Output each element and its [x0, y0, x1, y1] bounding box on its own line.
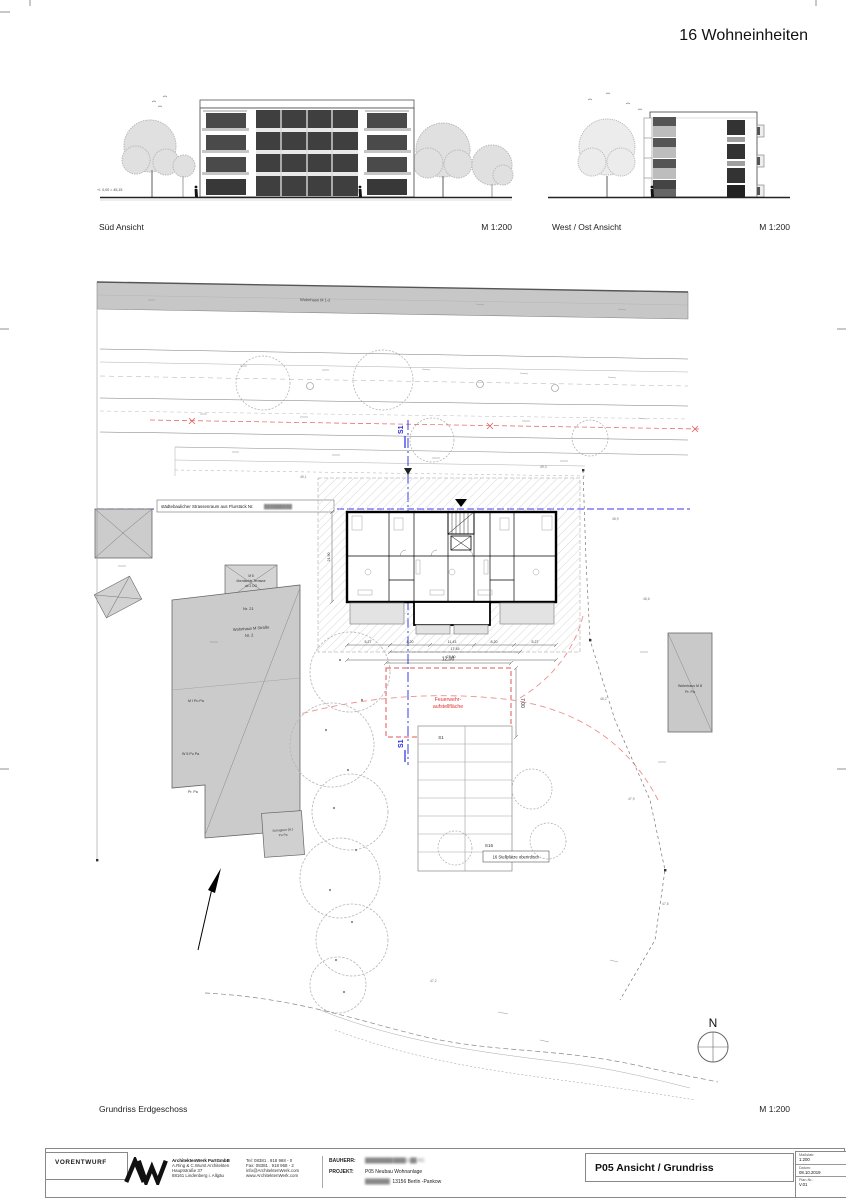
sued-ansicht-label: Süd Ansicht	[99, 222, 144, 232]
sued-elevation-drawing: +/- 0,00 = 45,15	[97, 96, 513, 200]
spot-6: 47,5	[662, 902, 669, 906]
house-label-2: Nr. 2	[245, 632, 255, 638]
sued-facade	[200, 100, 414, 197]
parking-last: S16	[485, 843, 494, 848]
road-lines	[100, 349, 688, 476]
sued-left-wing	[202, 111, 249, 195]
dim-3: 11,43	[448, 640, 457, 644]
spot-1: 49,3	[540, 465, 547, 469]
plannr-value: V.01	[799, 1182, 843, 1187]
dim-2: 8,20	[407, 640, 414, 644]
existing-right-building: Wohnhaus M 8 Pr. Pa	[668, 633, 712, 732]
massstab-section: Maßstab: 1:200	[796, 1152, 846, 1165]
section-label-top: S1	[398, 425, 405, 434]
tree-west-group	[578, 119, 635, 176]
parking-area: S1 S16 16 Stellplätze oberirdisch	[418, 726, 549, 871]
shed-label-2: Pu Pa	[279, 833, 288, 838]
parking-note: 16 Stellplätze oberirdisch	[493, 855, 540, 860]
birds-icon-2	[588, 93, 642, 110]
fire-lane-width: 12,00	[442, 657, 455, 663]
garden-trees	[290, 632, 390, 1013]
dim-left: 21,90	[327, 553, 331, 562]
tree-left-group	[122, 120, 195, 177]
projekt-addr: 13156 Berlin -Pankow	[392, 1177, 441, 1188]
fire-lane-label-2: aufstellfläche	[433, 704, 463, 710]
section-label-bottom: S1	[398, 739, 405, 748]
bauherr-label: BAUHERR:	[329, 1156, 365, 1167]
plan-sheet: 16 Wohneinheiten	[0, 0, 846, 1200]
firm-address-col: ArchitektenWerk PartGmbB A.Ring & C.Wurs…	[172, 1158, 244, 1178]
compass-n-label: N	[709, 1016, 718, 1030]
fire-lane-label-1: Feuerwehr-	[435, 697, 462, 703]
spot-7: 47,2	[430, 979, 437, 983]
plan-title-box: P05 Ansicht / Grundriss	[585, 1153, 794, 1182]
plan-info-box: Maßstab: 1:200 Datum: 08.10.2019 Plan-Nr…	[795, 1151, 846, 1198]
dim-1: 5,27	[365, 640, 372, 644]
datum-section: Datum: 08.10.2019	[796, 1165, 846, 1178]
bauherr-row: BAUHERR: █████████ ████ & ██. KG	[329, 1156, 539, 1167]
street-band-building: Wohnhaus M 1-2	[97, 282, 688, 319]
titleblock-bottom-rule	[45, 1197, 845, 1198]
north-arrow	[198, 868, 221, 950]
note-2: W 5 Pu Pa	[182, 752, 199, 756]
spot-4: 48,2	[600, 697, 607, 701]
projekt-row: PROJEKT: P05 Neubau Wohnanlage	[329, 1167, 539, 1178]
projekt-label: PROJEKT:	[329, 1167, 365, 1178]
grundriss-scale: M 1:200	[740, 1104, 790, 1114]
terrain-lines	[205, 993, 718, 1100]
spot-3: 48,6	[643, 597, 650, 601]
parking-first: S1	[438, 735, 444, 740]
bauherr-value: █████████ ████ & ██. KG	[365, 1156, 424, 1167]
level-note: +/- 0,00 = 45,15	[97, 188, 122, 192]
tree-right-group	[413, 123, 513, 185]
terrace-label-3: ab 2.OG	[245, 584, 258, 588]
sued-right-wing	[364, 111, 411, 195]
plan-title: P05 Ansicht / Grundriss	[586, 1154, 793, 1174]
side-windows	[757, 125, 764, 197]
street-poles	[307, 381, 559, 392]
dim-5: 5,27	[532, 640, 539, 644]
dim-upper: 17,45	[451, 647, 460, 651]
status-stamp: VORENTWURF	[45, 1152, 128, 1180]
fire-lane-depth: 7,00	[519, 698, 525, 708]
sued-ansicht-scale: M 1:200	[462, 222, 512, 232]
spot-5: 47,9	[628, 797, 635, 801]
note-1: M I Pu Pa	[188, 699, 204, 703]
survey-dots	[325, 659, 363, 993]
plannr-section: Plan-Nr.: V.01	[796, 1177, 846, 1189]
right-house-1: Wohnhaus M 8	[678, 684, 702, 688]
street-trees	[236, 350, 608, 462]
massstab-value: 1:200	[799, 1157, 843, 1162]
westost-ansicht-scale: M 1:200	[740, 222, 790, 232]
westost-facade	[644, 112, 764, 197]
westost-window-stack	[727, 120, 745, 197]
spot-2: 48,9	[612, 517, 619, 521]
spot-0: 49,1	[300, 475, 307, 479]
westost-balcony-stack	[653, 117, 676, 197]
datum-value: 08.10.2019	[799, 1170, 843, 1175]
strassenraum-note: städtebaulicher Strassenraum aus Flurstü…	[161, 504, 254, 509]
firm-web: www.ArchitektenWerk.com	[246, 1173, 314, 1178]
projekt-addr-row: ████████ 13156 Berlin -Pankow	[329, 1177, 539, 1188]
westost-ansicht-label: West / Ost Ansicht	[552, 222, 621, 232]
projekt-addr-redacted: ████████	[365, 1177, 389, 1188]
firm-line4: 88161 Lindenberg i. Allgäu	[172, 1173, 244, 1178]
existing-left-buildings: M 8 überdachte Terrasse ab 2.OG Nr. 21 W…	[94, 509, 304, 857]
grundriss-label: Grundriss Erdgeschoss	[99, 1104, 187, 1114]
street-band-label: Wohnhaus M 1-2	[300, 297, 331, 303]
terrace-label-1: M 8	[248, 574, 254, 578]
firm-contact-col: Tel: 08381 . 918 968 - 0 Fax: 08381 . 91…	[246, 1158, 314, 1178]
project-info-block: BAUHERR: █████████ ████ & ██. KG PROJEKT…	[322, 1156, 539, 1188]
titleblock-top-rule	[45, 1148, 845, 1149]
site-plan-drawing: Wohnhaus M 1-2	[94, 282, 728, 1100]
dim-4: 8,20	[491, 640, 498, 644]
new-building-plan	[347, 499, 556, 634]
terrace-label-2: überdachte Terrasse	[237, 579, 266, 583]
firm-logo-aw	[124, 1157, 168, 1185]
note-3: Pr. Pa	[188, 790, 198, 794]
house-no: Nr. 21	[243, 606, 254, 611]
birds-icon	[152, 96, 167, 107]
red-utility-line	[150, 418, 700, 432]
right-house-2: Pr. Pa	[685, 690, 695, 694]
drawing-canvas: +/- 0,00 = 45,15	[0, 0, 846, 1200]
compass-icon: N	[698, 1016, 728, 1062]
projekt-addr-spacer	[329, 1177, 365, 1188]
projekt-value: P05 Neubau Wohnanlage	[365, 1167, 422, 1178]
westost-elevation-drawing	[548, 93, 790, 198]
